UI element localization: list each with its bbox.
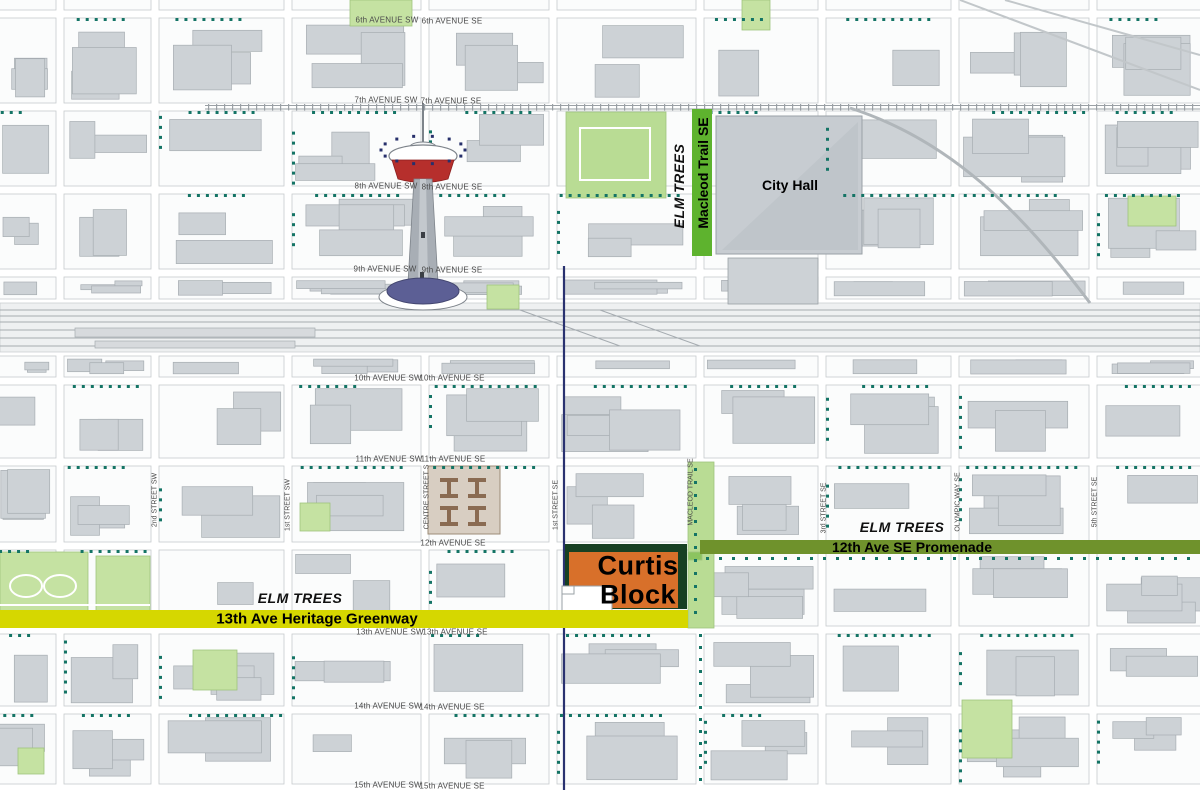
railway-corridor xyxy=(0,303,1200,352)
map-stage: 6th AVENUE SW6th AVENUE SE7th AVENUE SW7… xyxy=(0,0,1200,790)
map-canvas xyxy=(0,0,1200,790)
greenway-bar xyxy=(0,610,688,628)
promenade-bar xyxy=(700,540,1200,554)
macleod-trail-elm-bar xyxy=(692,109,712,256)
